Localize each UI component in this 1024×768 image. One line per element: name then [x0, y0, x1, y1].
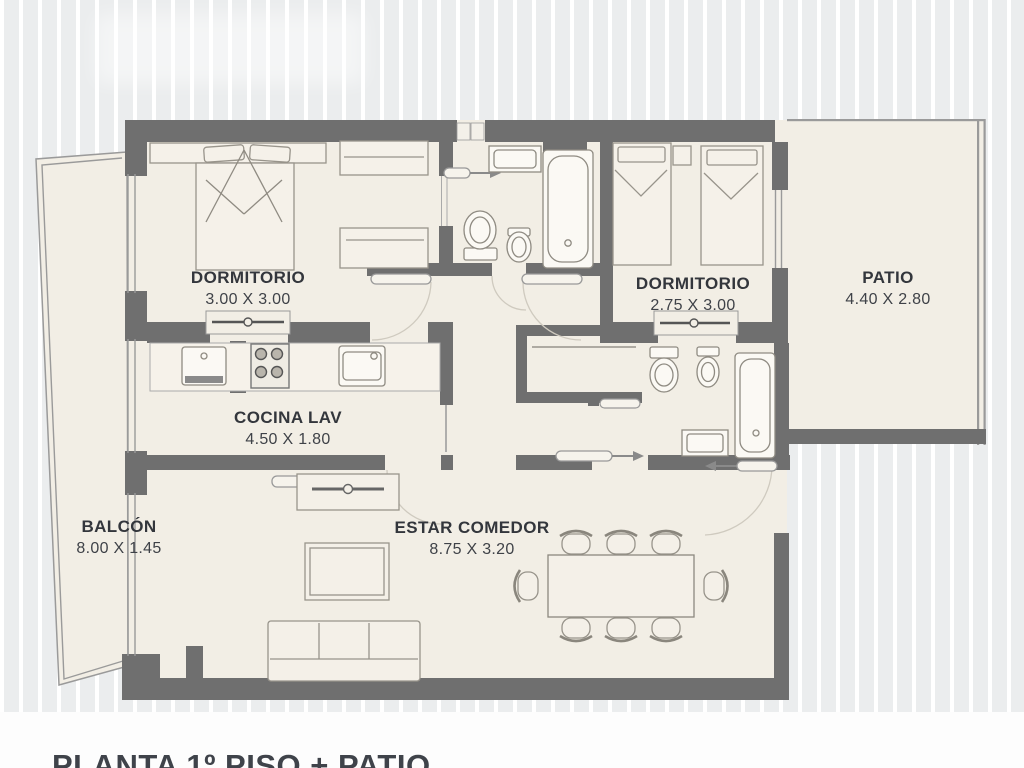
bidet	[697, 347, 719, 387]
wardrobe-top	[340, 141, 428, 175]
sofa	[268, 621, 420, 681]
kitchen-sink	[339, 346, 385, 386]
room-name: BALCÓN	[76, 517, 161, 537]
living-right-wall	[774, 533, 789, 700]
single-bed-2	[701, 146, 763, 265]
room-label-balcon: BALCÓN 8.00 X 1.45	[76, 517, 161, 558]
toilet	[650, 347, 678, 392]
window-bedroom1-sill	[206, 311, 290, 334]
bathroom-sink	[682, 430, 728, 456]
window-bedroom2-patio	[772, 190, 788, 268]
room-dims: 4.40 X 2.80	[845, 290, 930, 309]
floor-plan-page: DORMITORIO 3.00 X 3.00 DORMITORIO 2.75 X…	[0, 0, 1024, 768]
room-dims: 2.75 X 3.00	[636, 296, 750, 315]
room-name: ESTAR COMEDOR	[394, 518, 549, 538]
pillow	[249, 145, 290, 163]
door-leaf-bedroom1	[371, 274, 431, 284]
room-name: DORMITORIO	[191, 268, 305, 288]
closet-door-leaf	[600, 399, 640, 408]
sliding-door-patio	[705, 461, 777, 471]
room-name: PATIO	[845, 268, 930, 288]
single-bed-1	[613, 143, 671, 265]
kitchen-furniture	[150, 343, 440, 391]
floor-plan-drawing	[0, 0, 1024, 768]
wardrobe-mid	[340, 228, 428, 268]
bottom-wall	[122, 678, 789, 700]
room-dims: 4.50 X 1.80	[234, 430, 342, 449]
nightstand	[673, 146, 691, 165]
door-leaf-bedroom2	[522, 274, 582, 284]
room-dims: 3.00 X 3.00	[191, 290, 305, 309]
floors	[36, 120, 985, 700]
bathtub	[543, 150, 593, 268]
room-dims: 8.75 X 3.20	[394, 540, 549, 559]
balcony-floor	[36, 152, 128, 685]
patio-bottom-wall	[786, 429, 986, 444]
room-name: DORMITORIO	[636, 274, 750, 294]
tv-unit	[297, 474, 399, 510]
room-dims: 8.00 X 1.45	[76, 539, 161, 558]
toilet	[464, 211, 497, 260]
plan-caption: PLANTA 1º PISO + PATIO	[52, 748, 431, 768]
room-label-cocina: COCINA LAV 4.50 X 1.80	[234, 408, 342, 449]
washing-machine	[182, 347, 226, 385]
room-label-estar: ESTAR COMEDOR 8.75 X 3.20	[394, 518, 549, 559]
room-label-dormitorio-1: DORMITORIO 3.00 X 3.00	[191, 268, 305, 309]
bathroom-sink	[489, 146, 541, 172]
room-name: COCINA LAV	[234, 408, 342, 428]
stove	[251, 344, 289, 388]
coffee-table	[305, 543, 389, 600]
bathtub	[735, 353, 775, 458]
dining-table	[548, 555, 694, 617]
room-label-patio: PATIO 4.40 X 2.80	[845, 268, 930, 309]
room-label-dormitorio-2: DORMITORIO 2.75 X 3.00	[636, 274, 750, 315]
bidet	[507, 228, 531, 262]
